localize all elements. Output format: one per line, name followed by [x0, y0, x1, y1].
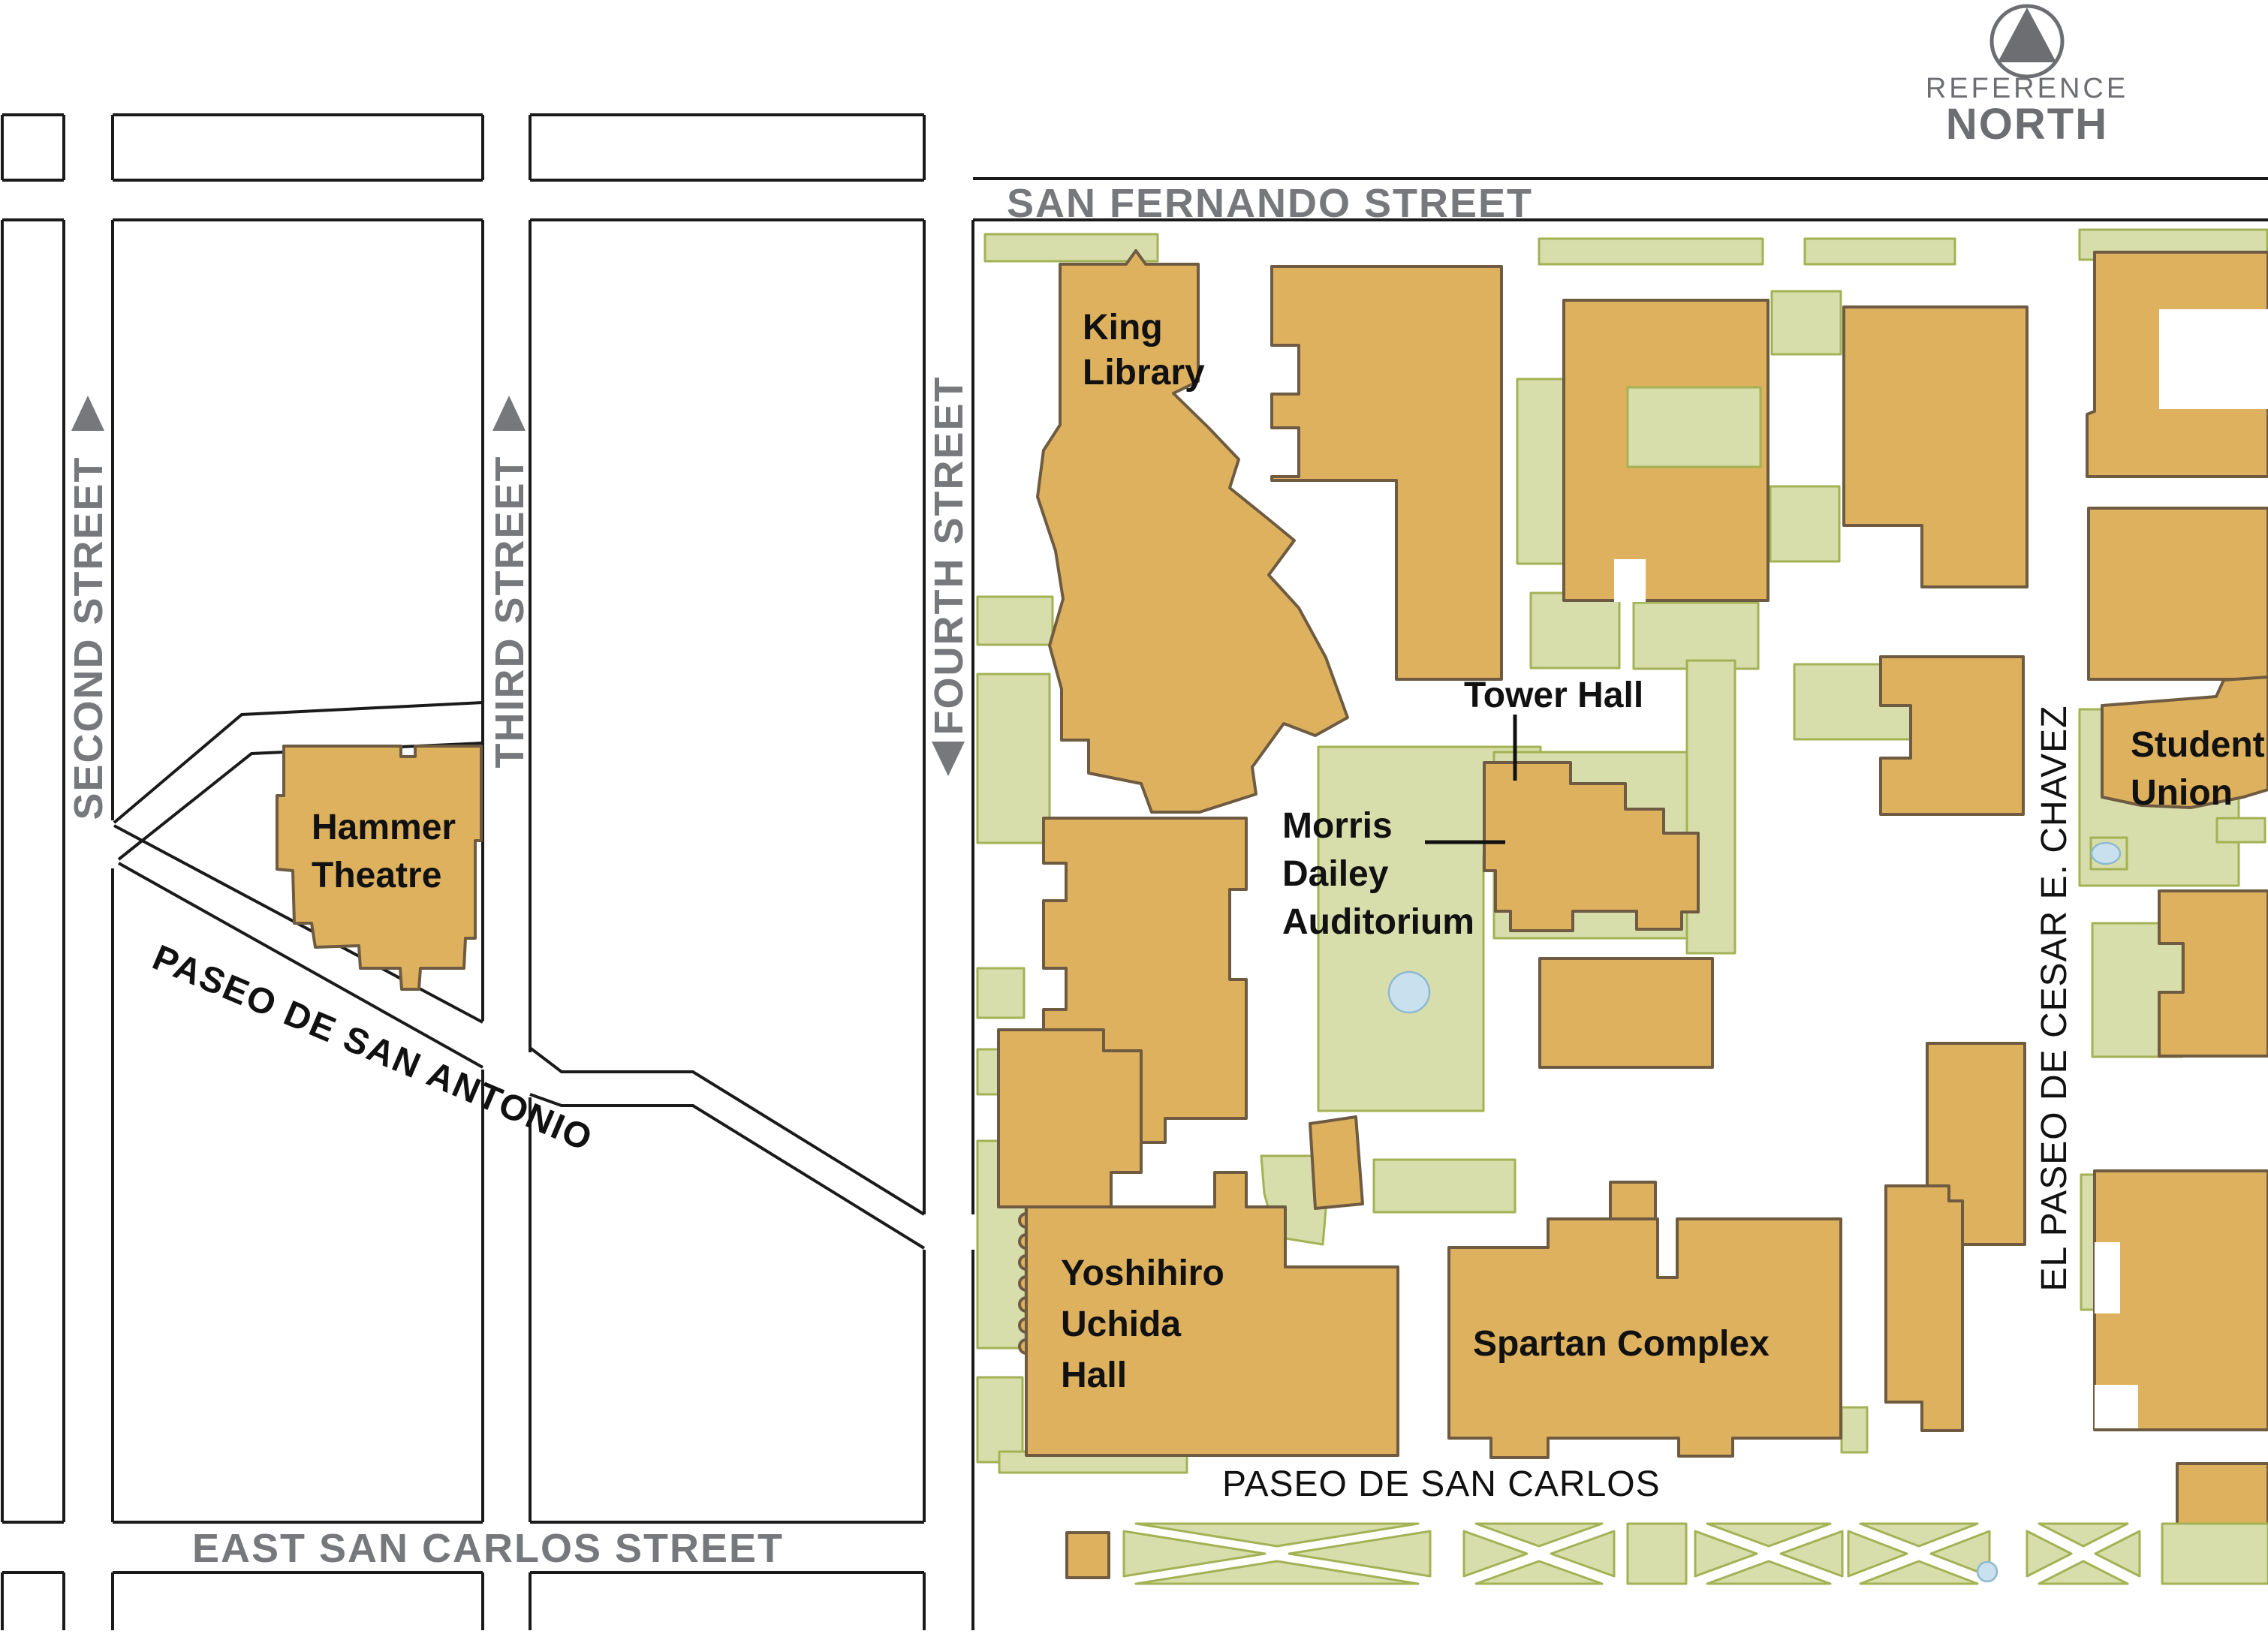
green-patch: [977, 1377, 1023, 1462]
green-patch: [977, 674, 1050, 843]
central-plaza-pond: [1389, 972, 1429, 1013]
campus-building: [2089, 508, 2268, 679]
tower-hall-label: Tower Hall: [1464, 676, 1643, 715]
campus-building: [1844, 307, 2027, 587]
bowtie-segment: [1124, 1524, 1430, 1584]
spartan-complex-label: Spartan Complex: [1473, 1324, 1770, 1364]
fourth-street-down-arrow-icon: [932, 742, 965, 776]
reference-north-compass: REFERENCE NORTH: [1926, 6, 2128, 149]
median-rect: [1628, 1524, 1686, 1584]
compass-north-text: NORTH: [1946, 100, 2108, 149]
block-lines-vertical: [2, 115, 973, 1630]
campus-building: [1310, 1117, 1363, 1208]
green-patch: [1842, 1407, 1867, 1452]
morris-dailey-label-line2: Dailey: [1282, 854, 1389, 894]
king-library-label-line2: Library: [1083, 353, 1205, 393]
courtyard-green: [1628, 387, 1760, 467]
student-union-label-line1: Student: [2131, 725, 2265, 765]
green-strip: [1539, 239, 1763, 264]
courtyard-path: [2095, 1242, 2120, 1314]
second-street-label: SECOND STREET: [66, 456, 111, 820]
campus-building: [1886, 1186, 1962, 1431]
green-strip: [1805, 239, 1955, 264]
student-union-label-line2: Union: [2131, 773, 2233, 813]
hammer-theatre-label-line2: Theatre: [312, 856, 441, 895]
green-patch: [1770, 486, 1839, 561]
san-fernando-street-label: SAN FERNANDO STREET: [1007, 181, 1533, 226]
green-patch: [977, 968, 1024, 1018]
courtyard-path: [1614, 559, 1646, 602]
paseo-san-carlos-medians: [1124, 1524, 2268, 1584]
campus-building: [998, 1030, 1141, 1207]
campus-building: [1272, 266, 1501, 679]
paseo-san-carlos-label: PASEO DE SAN CARLOS: [1222, 1464, 1661, 1504]
green-patch: [1772, 291, 1841, 354]
bowtie-segment: [1464, 1524, 1614, 1584]
king-library-label-line1: King: [1083, 308, 1163, 348]
third-street-label: THIRD STREET: [487, 455, 532, 768]
green-patch: [1634, 603, 1758, 669]
campus-building: [1540, 958, 1712, 1067]
morris-dailey-label-line1: Morris: [1282, 806, 1393, 846]
fourth-street-label: FOURTH STREET: [926, 376, 971, 736]
green-patch: [1517, 379, 1564, 564]
yoshihiro-uchida-label-line2: Uchida: [1061, 1304, 1181, 1344]
green-patch: [2217, 818, 2265, 842]
paseo-san-carlos-pond: [1977, 1562, 1997, 1581]
yoshihiro-uchida-label-line3: Hall: [1061, 1356, 1127, 1395]
median-rect: [2162, 1524, 2268, 1584]
third-street-up-arrow-icon: [492, 396, 526, 431]
campus-buildings: [277, 251, 2268, 1578]
second-street-up-arrow-icon: [71, 396, 104, 431]
east-san-carlos-street-label: EAST SAN CARLOS STREET: [192, 1526, 784, 1571]
hammer-theatre-label-line1: Hammer: [312, 808, 456, 847]
bowtie-segment: [1848, 1524, 1989, 1584]
campus-map: SAN FERNANDO STREET EAST SAN CARLOS STRE…: [0, 0, 2268, 1630]
el-paseo-cesar-chavez-label: EL PASEO DE CESAR E. CHAVEZ: [2035, 706, 2074, 1292]
green-patch: [1531, 593, 1619, 668]
bowtie-segment: [1695, 1524, 1842, 1584]
bowtie-segment: [2027, 1524, 2140, 1584]
morris-dailey-label-line3: Auditorium: [1282, 902, 1474, 942]
green-patch: [977, 597, 1053, 645]
student-union-pond: [2092, 843, 2120, 864]
green-patch: [1374, 1160, 1515, 1212]
campus-building: [1067, 1533, 1109, 1578]
courtyard-path: [2159, 309, 2268, 409]
yoshihiro-uchida-label-line1: Yoshihiro: [1061, 1253, 1224, 1293]
courtyard-path: [2095, 1385, 2138, 1428]
